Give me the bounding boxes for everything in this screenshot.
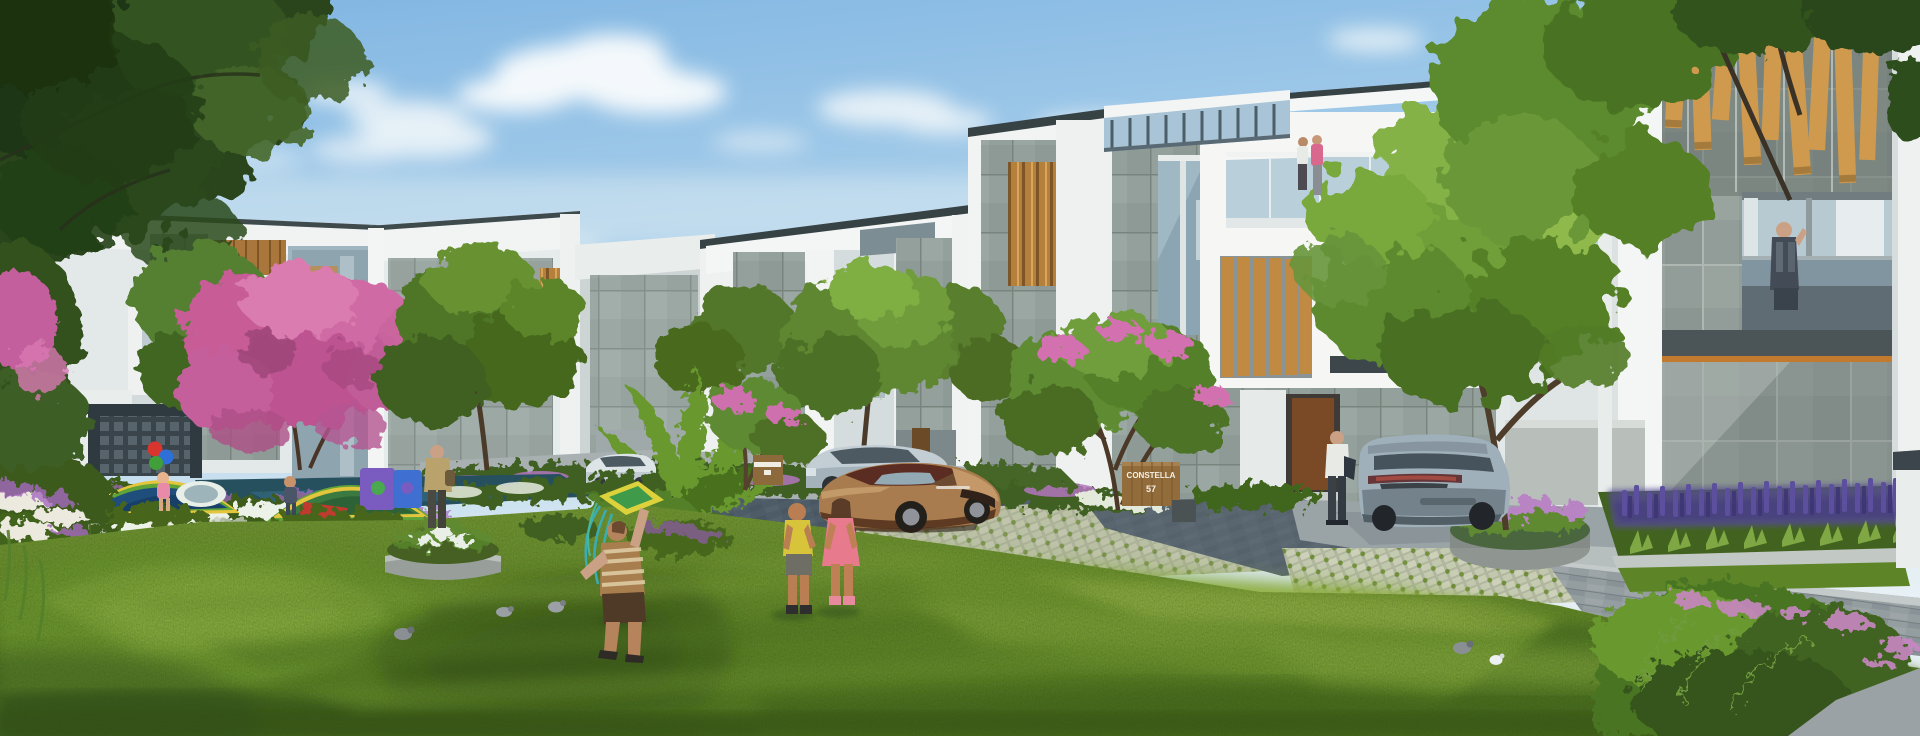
svg-text:CONSTELLA: CONSTELLA bbox=[1127, 471, 1176, 480]
svg-text:57: 57 bbox=[1146, 484, 1156, 494]
